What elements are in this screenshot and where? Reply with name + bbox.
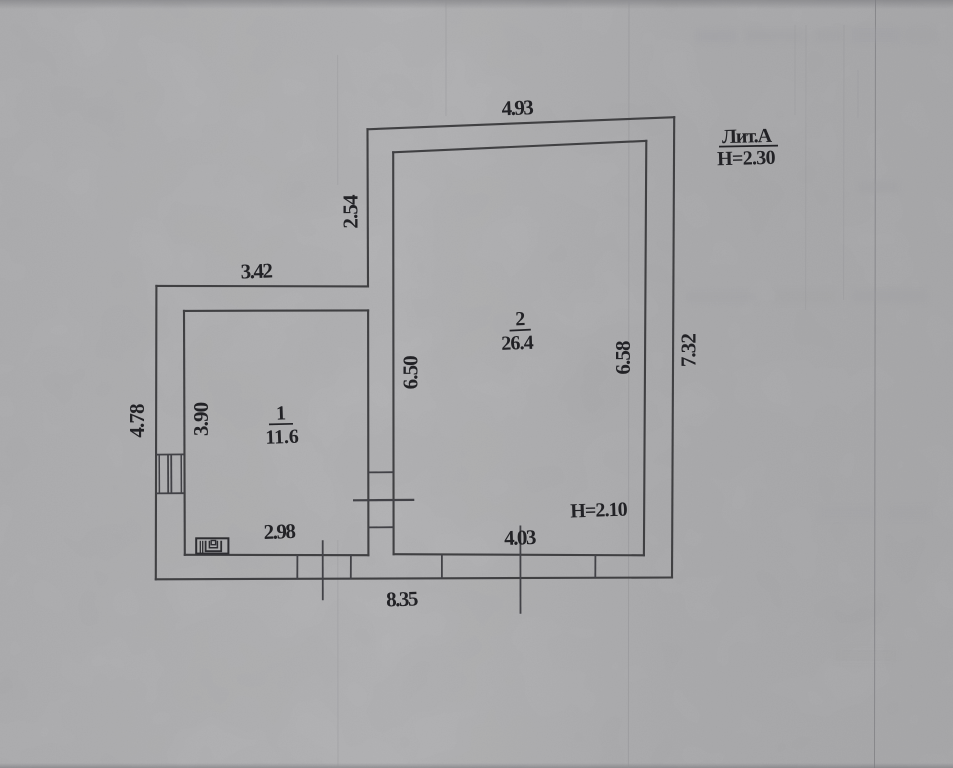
svg-text:6.50: 6.50 [399,356,423,390]
svg-text:H=2.10: H=2.10 [570,498,628,522]
svg-text:4.93: 4.93 [501,95,534,120]
svg-text:6.58: 6.58 [611,341,635,375]
svg-text:26.4: 26.4 [501,332,534,355]
svg-text:4.03: 4.03 [504,525,537,550]
svg-text:1: 1 [276,402,287,424]
svg-text:Лит.А: Лит.А [722,125,773,148]
svg-text:2.54: 2.54 [339,194,363,229]
svg-text:7.32: 7.32 [677,334,701,368]
svg-text:2: 2 [515,308,526,330]
svg-text:3.90: 3.90 [189,402,213,436]
svg-text:8.35: 8.35 [386,586,419,611]
svg-text:Н=2.30: Н=2.30 [717,147,776,171]
svg-text:11.6: 11.6 [265,426,299,449]
svg-text:2.98: 2.98 [263,519,296,544]
svg-text:3.42: 3.42 [240,258,273,283]
svg-text:4.78: 4.78 [125,404,149,438]
